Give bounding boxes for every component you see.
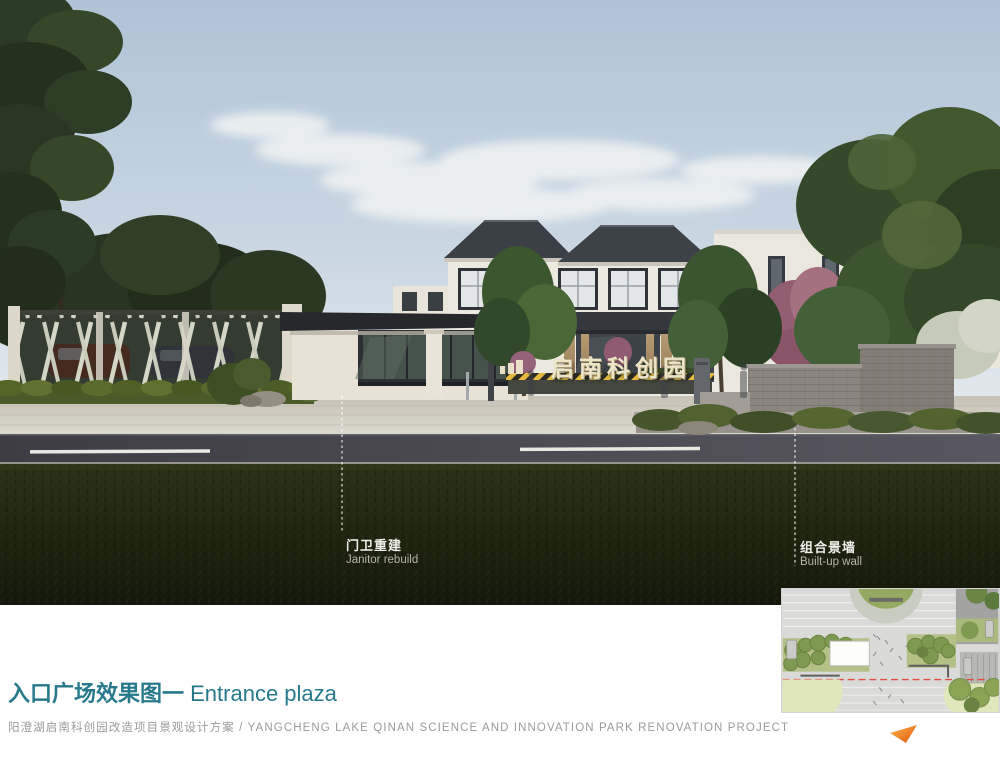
- page-subtitle: 阳澄湖启南科创园改造项目景观设计方案 / YANGCHENG LAKE QINA…: [8, 719, 789, 735]
- annotation-wall-en: Built-up wall: [800, 556, 862, 570]
- plan-lawn-left: [783, 680, 843, 712]
- annotation-janitor-rebuild: 门卫重建 Janitor rebuild: [346, 538, 418, 567]
- presentation-slide: 启南科创园 门卫重建 Janitor rebuild 组合景墙 Built-up…: [0, 0, 1000, 768]
- annotation-janitor-zh: 门卫重建: [346, 538, 418, 554]
- plan-janitor-building: [830, 641, 869, 666]
- page-title-en: Entrance plaza: [184, 681, 337, 706]
- fold-arrow-icon: [889, 724, 919, 744]
- road: [0, 434, 1000, 464]
- annotation-janitor-en: Janitor rebuild: [346, 554, 418, 568]
- page-title: 入口广场效果图一 Entrance plaza: [8, 676, 337, 708]
- inset-site-plan: [781, 588, 1000, 713]
- page-title-zh: 入口广场效果图一: [8, 681, 184, 706]
- annotation-built-up-wall: 组合景墙 Built-up wall: [800, 540, 862, 569]
- entrance-plaza-rendering: 启南科创园 门卫重建 Janitor rebuild 组合景墙 Built-up…: [0, 0, 1000, 605]
- gate-sign-text: 启南科创园: [536, 349, 706, 383]
- rendering-scene: [0, 0, 1000, 605]
- annotation-wall-zh: 组合景墙: [800, 540, 862, 556]
